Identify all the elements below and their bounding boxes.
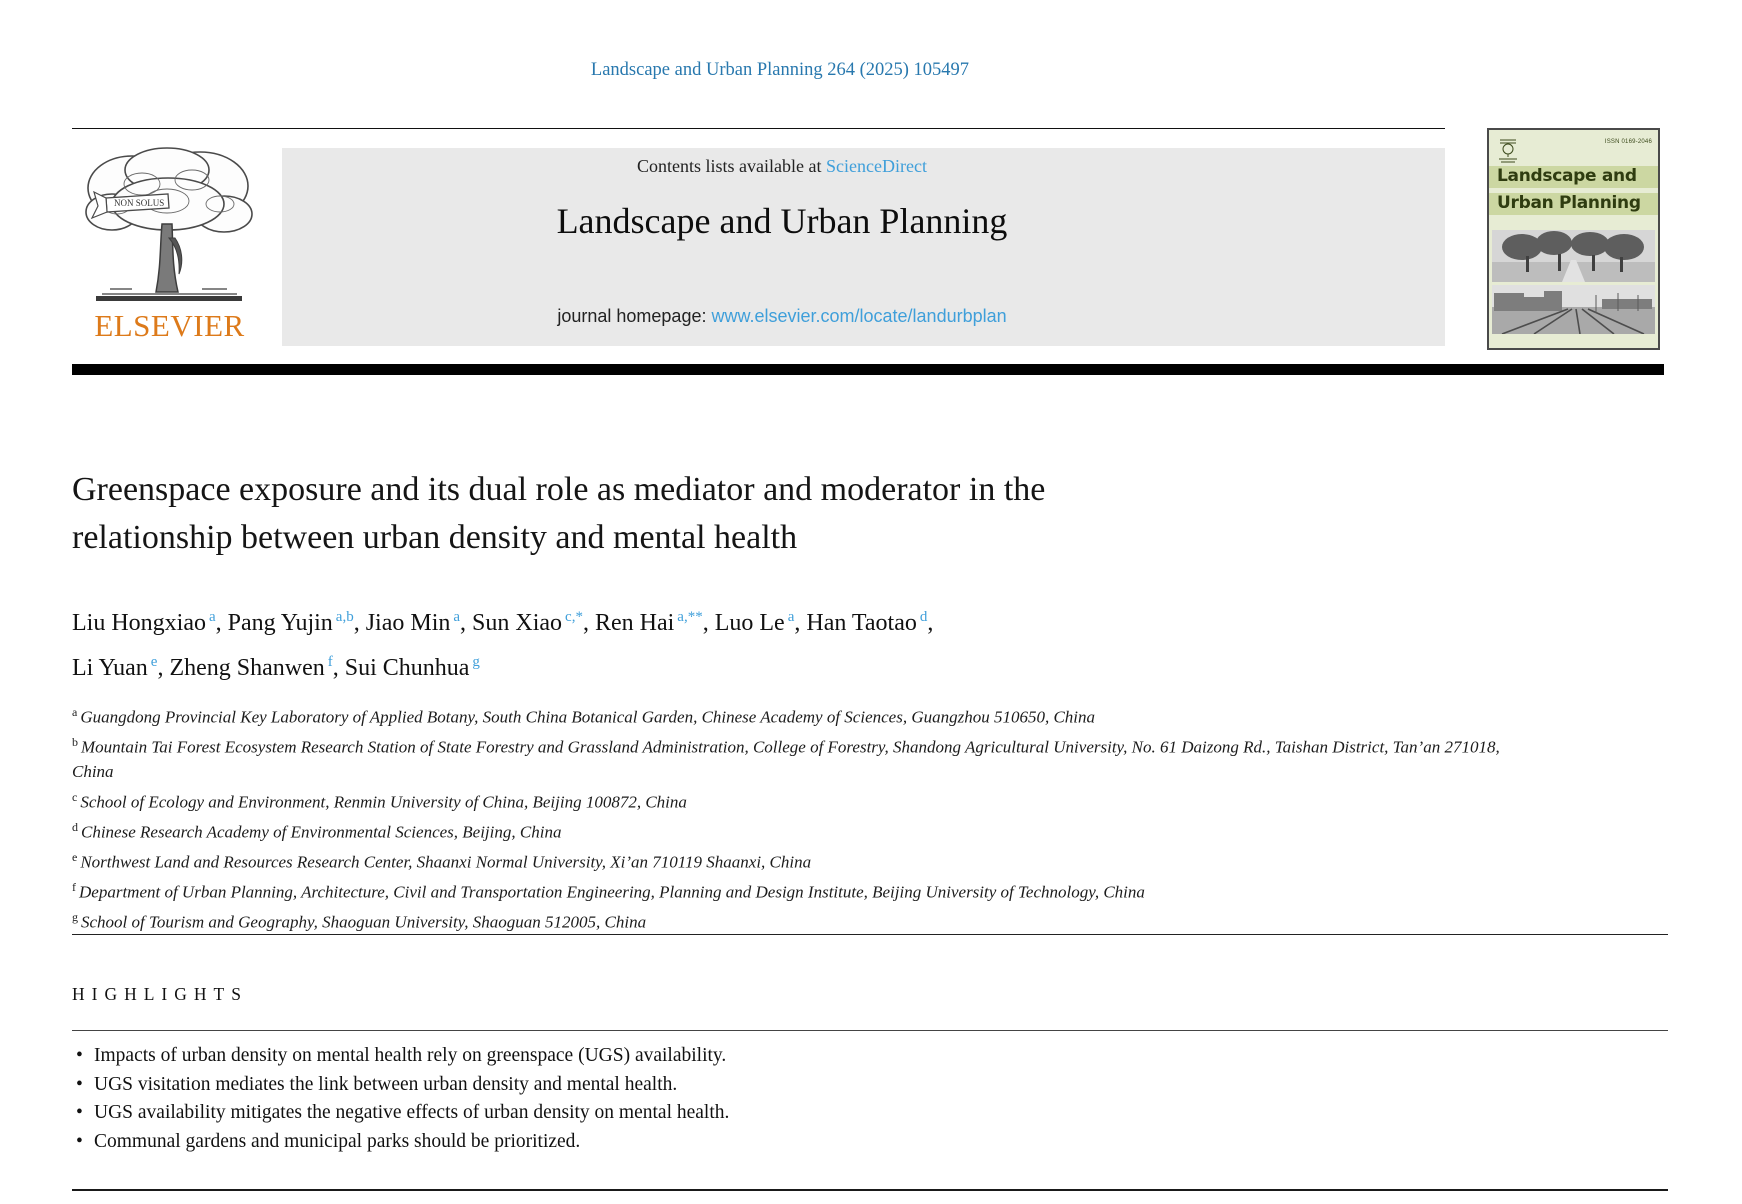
cover-photo-railway	[1492, 285, 1655, 334]
author-line-1: Liu Hongxiaoa, Pang Yujina,b, Jiao Mina,…	[72, 598, 1572, 643]
highlights-heading-rule	[72, 1030, 1668, 1031]
cover-title-band-1: Landscape and	[1489, 166, 1658, 188]
author: Jiao Mina,	[366, 610, 472, 636]
bullet-icon: •	[76, 1099, 94, 1128]
cover-issn: ISSN 0169-2046	[1605, 139, 1652, 145]
author: Luo Lea,	[715, 610, 807, 636]
author-list: Liu Hongxiaoa, Pang Yujina,b, Jiao Mina,…	[72, 598, 1572, 688]
author-affiliation-sup: a,**	[677, 609, 702, 625]
article-title-line1: Greenspace exposure and its dual role as…	[72, 466, 1522, 514]
homepage-label: journal homepage:	[557, 306, 711, 326]
cover-title-band-2: Urban Planning	[1489, 193, 1658, 215]
author-affiliation-sup: a	[209, 609, 216, 625]
highlight-item: •UGS visitation mediates the link betwee…	[76, 1071, 1576, 1100]
bullet-icon: •	[76, 1071, 94, 1100]
author-line-2: Li Yuane, Zheng Shanwenf, Sui Chunhuag	[72, 643, 1572, 688]
elsevier-wordmark: ELSEVIER	[72, 308, 267, 344]
elsevier-tree-icon: NON SOLUS	[72, 146, 267, 310]
homepage-url-link[interactable]: www.elsevier.com/locate/landurbplan	[711, 306, 1006, 326]
author: Ren Haia,**,	[595, 610, 715, 636]
elsevier-stamp-icon	[1497, 137, 1519, 163]
author: Han Taotaod,	[806, 610, 933, 636]
author: Sui Chunhuag	[345, 655, 480, 681]
cover-title-line2: Urban Planning	[1489, 193, 1658, 214]
highlights-top-rule	[72, 934, 1668, 935]
affiliation: bMountain Tai Forest Ecosystem Research …	[72, 730, 1522, 785]
header-divider-bar	[72, 364, 1664, 375]
highlights-list: •Impacts of urban density on mental heal…	[76, 1042, 1576, 1156]
bullet-icon: •	[76, 1042, 94, 1071]
author: Pang Yujina,b,	[228, 610, 366, 636]
author-affiliation-sup: c,*	[565, 609, 583, 625]
journal-banner: Contents lists available at ScienceDirec…	[282, 148, 1445, 346]
contents-line: Contents lists available at ScienceDirec…	[282, 156, 1282, 177]
journal-cover-thumbnail: ISSN 0169-2046 Landscape and Urban Plann…	[1487, 128, 1660, 350]
article-title-line2: relationship between urban density and m…	[72, 514, 1522, 562]
highlight-item: •Communal gardens and municipal parks sh…	[76, 1128, 1576, 1157]
tree-trunk	[156, 224, 178, 292]
article-title: Greenspace exposure and its dual role as…	[72, 466, 1522, 562]
journal-title: Landscape and Urban Planning	[282, 200, 1282, 242]
author: Sun Xiaoc,*,	[472, 610, 595, 636]
contents-prefix: Contents lists available at	[637, 156, 826, 176]
author: Zheng Shanwenf,	[169, 655, 344, 681]
affiliation-list: aGuangdong Provincial Key Laboratory of …	[72, 700, 1522, 936]
svg-text:NON SOLUS: NON SOLUS	[114, 198, 164, 208]
highlight-item: •Impacts of urban density on mental heal…	[76, 1042, 1576, 1071]
homepage-line: journal homepage: www.elsevier.com/locat…	[282, 306, 1282, 327]
affiliation: eNorthwest Land and Resources Research C…	[72, 845, 1522, 875]
cover-title-line1: Landscape and	[1489, 166, 1658, 187]
header-top-rule	[72, 128, 1445, 129]
highlights-heading: HIGHLIGHTS	[72, 984, 248, 1005]
affiliation: fDepartment of Urban Planning, Architect…	[72, 875, 1522, 905]
author: Li Yuane,	[72, 655, 169, 681]
highlight-item: •UGS availability mitigates the negative…	[76, 1099, 1576, 1128]
journal-first-page: Landscape and Urban Planning 264 (2025) …	[0, 0, 1742, 1204]
author-affiliation-sup: a,b	[336, 609, 354, 625]
affiliation: cSchool of Ecology and Environment, Renm…	[72, 785, 1522, 815]
elsevier-logo: NON SOLUS ELSEVIER	[72, 146, 267, 350]
author-affiliation-sup: g	[472, 654, 480, 670]
sciencedirect-link[interactable]: ScienceDirect	[826, 156, 927, 176]
author: Liu Hongxiaoa,	[72, 610, 228, 636]
affiliation: gSchool of Tourism and Geography, Shaogu…	[72, 905, 1522, 935]
journal-citation: Landscape and Urban Planning 264 (2025) …	[0, 60, 1560, 81]
page-bottom-rule	[72, 1189, 1668, 1191]
affiliation: dChinese Research Academy of Environment…	[72, 815, 1522, 845]
cover-photo-trees	[1492, 230, 1655, 282]
bullet-icon: •	[76, 1128, 94, 1157]
affiliation: aGuangdong Provincial Key Laboratory of …	[72, 700, 1522, 730]
